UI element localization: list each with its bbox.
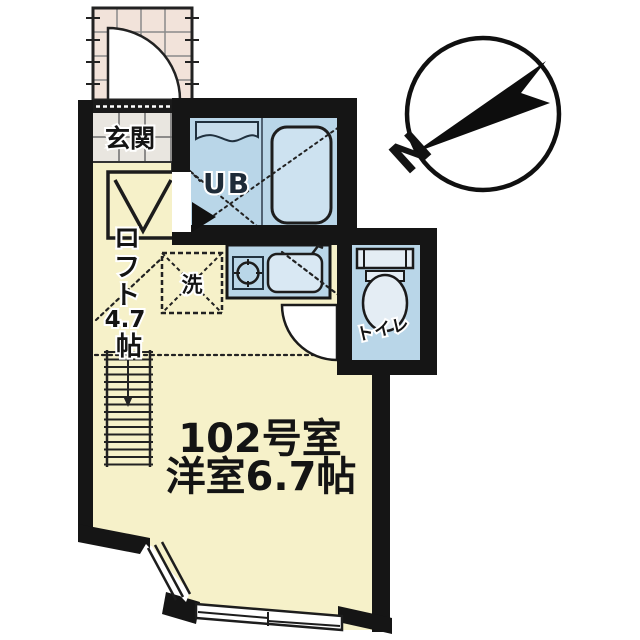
wall-ub-bottom [182,225,357,245]
bathtub [272,127,331,223]
wall-left [78,100,93,542]
kitchen-sink [268,254,322,292]
room-size-label: 洋室6.7帖 [166,454,357,500]
wall-toilet-right [420,228,437,375]
loft-char-4: 帖 [116,332,142,362]
loft-char-3: 4.7 [105,307,146,333]
compass-north-label: N [380,122,441,185]
wall-toilet-left [337,245,352,375]
floor-plan: N 玄関 UB 洗 トイレ ロ フ ト 4.7 帖 102号室 洋室6.7帖 [0,0,640,640]
entrance-porch [86,8,199,100]
wall-top [172,98,357,118]
kitchen-counter [227,245,330,298]
ub-label: UB [203,167,251,200]
genkan-label: 玄関 [105,124,155,153]
washer-label: 洗 [182,273,203,297]
wall-right [372,360,390,632]
wall-ub-right [337,98,357,232]
toilet-tank [357,249,413,268]
north-arrow-icon [414,61,550,153]
compass: N [380,38,559,190]
loft-char-0: ロ [114,224,140,254]
loft-char-1: フ [114,253,140,283]
